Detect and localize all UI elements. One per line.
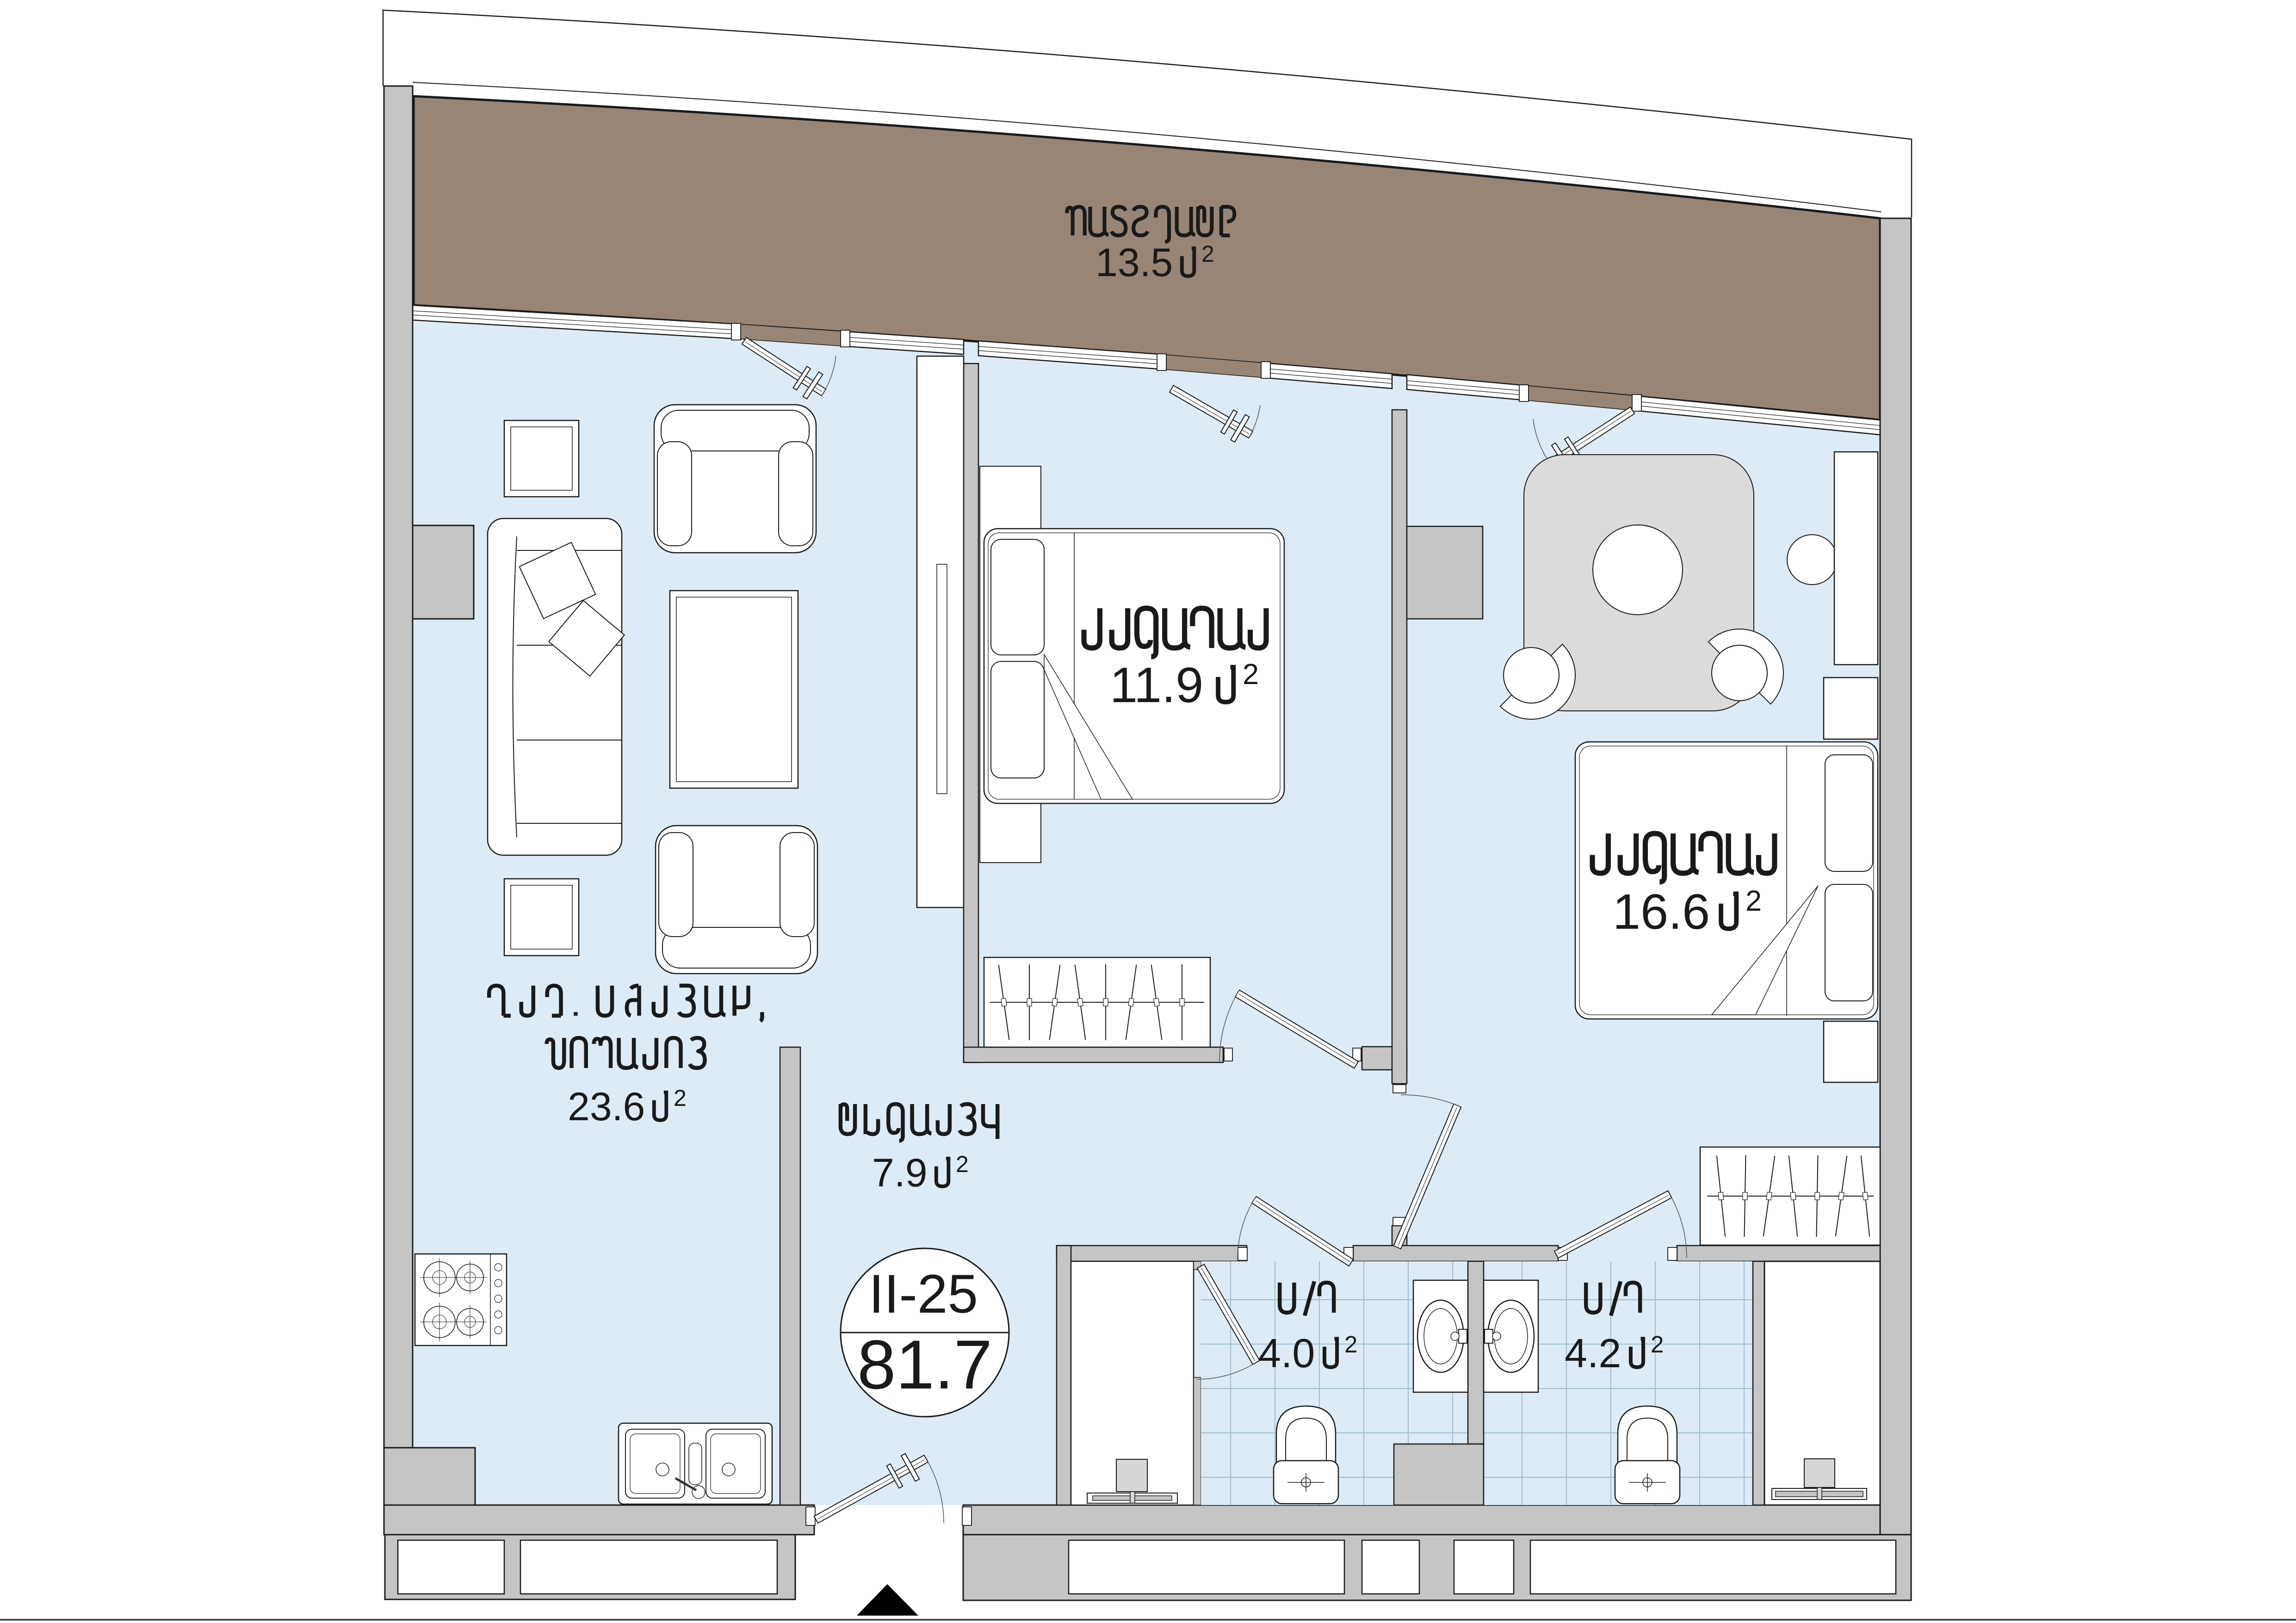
svg-text:2: 2	[956, 1151, 969, 1177]
svg-text:16.6: 16.6	[1613, 883, 1710, 939]
svg-text:4.2: 4.2	[1565, 1330, 1621, 1376]
svg-text:2: 2	[1243, 658, 1259, 691]
svg-text:23.6: 23.6	[568, 1085, 645, 1129]
svg-text:13.5: 13.5	[1095, 241, 1173, 285]
svg-text:7.9: 7.9	[872, 1151, 928, 1195]
svg-text:II-25: II-25	[869, 1264, 978, 1325]
svg-text:2: 2	[1651, 1331, 1664, 1358]
svg-text:11.9: 11.9	[1110, 657, 1203, 713]
svg-text:4.0: 4.0	[1258, 1330, 1315, 1376]
svg-text:2: 2	[1344, 1331, 1357, 1358]
svg-text:2: 2	[674, 1085, 687, 1111]
svg-text:2: 2	[1745, 885, 1762, 917]
svg-text:81.7: 81.7	[857, 1326, 992, 1403]
svg-text:2: 2	[1201, 241, 1214, 267]
